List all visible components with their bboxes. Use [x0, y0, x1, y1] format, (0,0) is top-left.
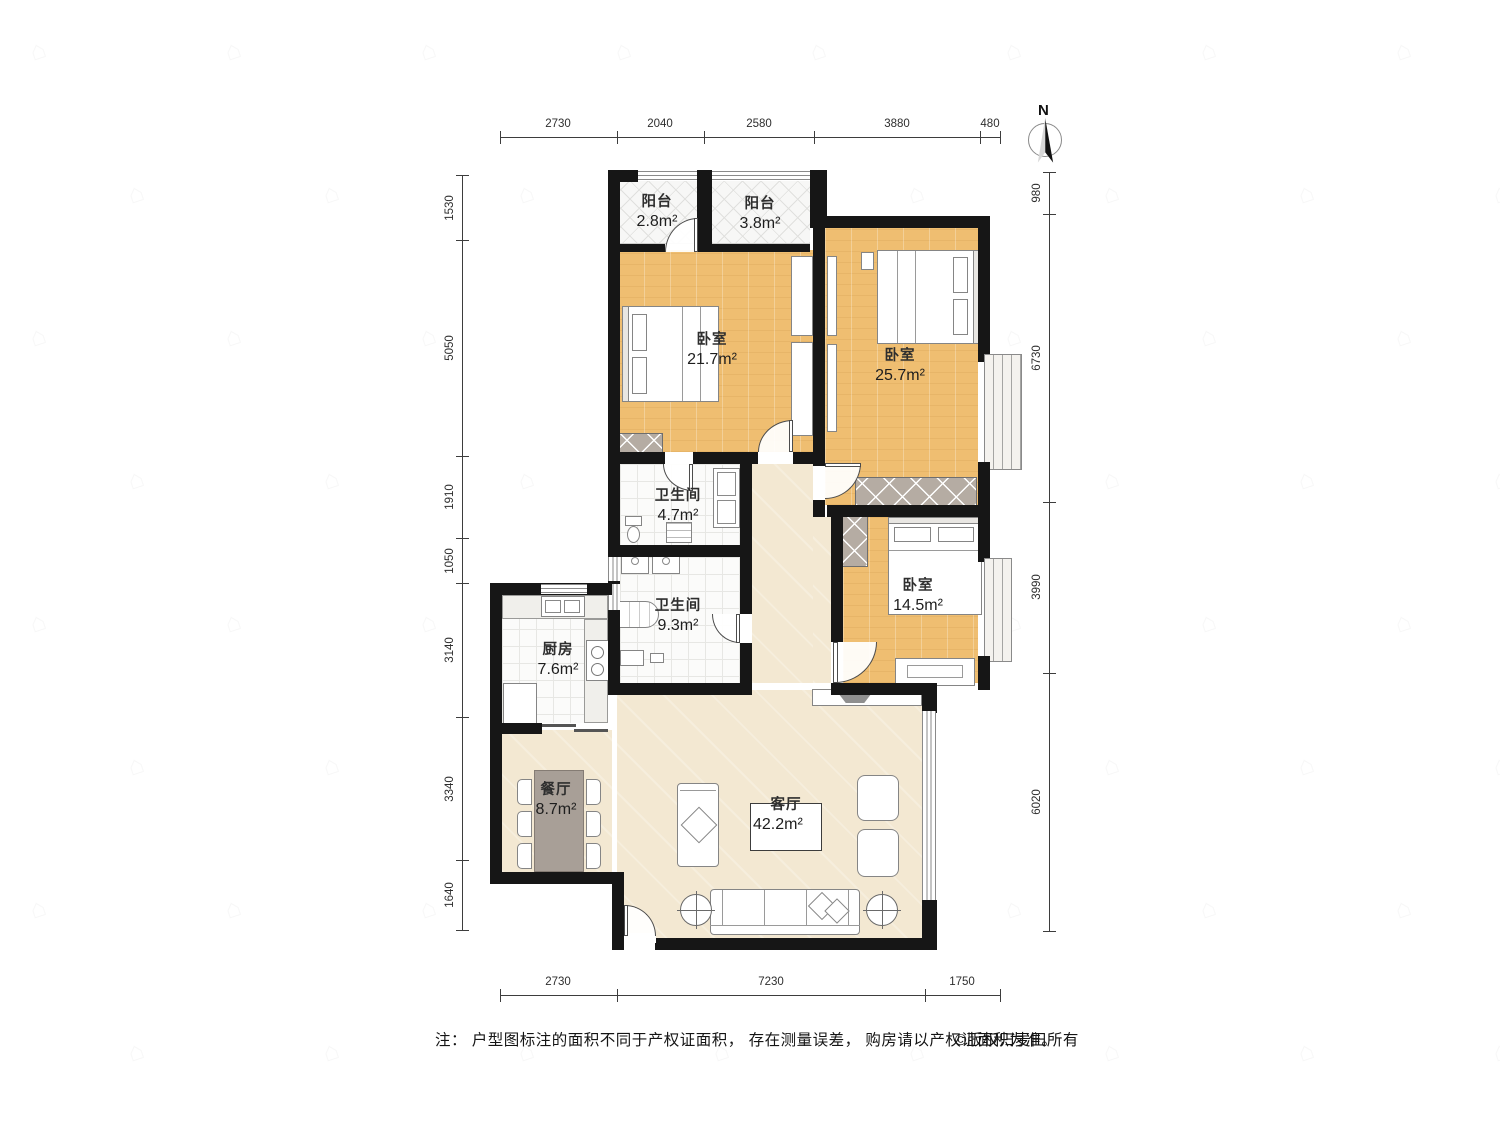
wall: [831, 517, 843, 642]
window-seat-inner: [907, 665, 963, 678]
tick: [1043, 931, 1056, 932]
watermark-mark: ⌂: [416, 891, 441, 925]
wardrobe-bedroom-c: [841, 515, 868, 567]
watermark-mark: ⌂: [221, 605, 246, 639]
tick: [925, 989, 926, 1002]
watermark-mark: ⌂: [1001, 33, 1026, 67]
bed-c-headboard: [888, 517, 982, 524]
room-name: 客厅: [748, 793, 824, 814]
wall: [978, 656, 990, 690]
room-name: 卧室: [668, 328, 756, 349]
watermark-mark: ⌂: [904, 176, 929, 210]
bed-a-headboard: [622, 306, 629, 402]
dim-bottom-2: 7230: [758, 976, 784, 988]
door-bath-b-leaf: [736, 614, 740, 643]
balcony1-rail-window: [638, 171, 697, 181]
fridge: [503, 683, 537, 725]
corridor-floor: [752, 464, 813, 683]
dim-bottom-3: 1750: [949, 976, 975, 988]
tick: [456, 538, 469, 539]
room-area: 4.7m²: [636, 507, 720, 525]
room-area: 7.6m²: [516, 661, 600, 679]
bed-b-pillow-1: [953, 257, 968, 293]
living-room-window: [922, 711, 936, 902]
tick: [500, 989, 501, 1002]
shelf-bedroom-b-1: [827, 256, 837, 336]
kitchen-sliding-door-2: [574, 729, 608, 732]
bed-c-line: [889, 550, 981, 551]
label-balcony2: 阳台 3.8m²: [716, 192, 804, 233]
basin-dot-2: [662, 557, 670, 565]
washer-bath-b: [620, 650, 644, 666]
bay-window-bedroom-c: [984, 558, 1012, 662]
bed-a-pillow-1: [632, 314, 647, 351]
watermark-mark: ⌂: [26, 891, 51, 925]
label-balcony1: 阳台 2.8m²: [616, 190, 698, 231]
watermark-mark: ⌂: [1391, 33, 1416, 67]
watermark-mark: ⌂: [1391, 319, 1416, 353]
wall: [612, 872, 624, 950]
tick: [980, 131, 981, 144]
wall: [922, 683, 937, 713]
tick: [456, 930, 469, 931]
watermark-mark: ⌂: [1489, 462, 1500, 496]
watermark-mark: ⌂: [124, 748, 149, 782]
tick: [814, 131, 815, 144]
watermark-mark: ⌂: [1391, 891, 1416, 925]
dim-top-4: 3880: [884, 118, 910, 130]
label-bath-a: 卫生间 4.7m²: [636, 484, 720, 525]
label-kitchen: 厨房 7.6m²: [516, 638, 600, 679]
watermark-mark: ⌂: [416, 33, 441, 67]
tick: [1043, 673, 1056, 674]
watermark-mark: ⌂: [611, 33, 636, 67]
watermark-mark: ⌂: [26, 605, 51, 639]
wall: [827, 505, 990, 517]
copyright-note: ©版权归麦田所有: [955, 1028, 1079, 1050]
room-area: 9.3m²: [636, 617, 720, 635]
label-living: 客厅 42.2m²: [748, 793, 824, 834]
tick: [617, 989, 618, 1002]
wall: [698, 244, 810, 252]
dim-line-left: [462, 175, 463, 930]
door-bedroom-c-leaf: [833, 642, 838, 683]
dim-right-1: 980: [1031, 183, 1043, 202]
dim-left-5: 3140: [444, 637, 456, 663]
dim-left-6: 3340: [444, 776, 456, 802]
kitchen-sink-basin-2: [564, 600, 580, 613]
watermark-mark: ⌂: [319, 462, 344, 496]
watermark-mark: ⌂: [221, 319, 246, 353]
watermark-mark: ⌂: [1489, 176, 1500, 210]
watermark-mark: ⌂: [514, 462, 539, 496]
watermark-mark: ⌂: [1099, 462, 1124, 496]
room-name: 卧室: [854, 344, 946, 365]
tick: [1043, 172, 1056, 173]
label-bedroom-b: 卧室 25.7m²: [854, 344, 946, 385]
room-area: 21.7m²: [668, 351, 756, 369]
dim-right-3: 3990: [1031, 574, 1043, 600]
tick: [617, 131, 618, 144]
dim-left-1: 1530: [444, 195, 456, 221]
room-name: 阳台: [716, 192, 804, 213]
tick: [1043, 502, 1056, 503]
wall: [608, 452, 665, 464]
label-bedroom-c: 卧室 14.5m²: [874, 574, 962, 615]
entry-door-leaf: [624, 905, 628, 936]
watermark-mark: ⌂: [124, 1034, 149, 1068]
compass-north-label: N: [1038, 102, 1049, 119]
watermark-mark: ⌂: [221, 891, 246, 925]
dim-top-3: 2580: [746, 118, 772, 130]
watermark-mark: ⌂: [1196, 319, 1221, 353]
wall: [813, 500, 825, 517]
room-name: 卧室: [874, 574, 962, 595]
watermark-mark: ⌂: [319, 1034, 344, 1068]
wall: [608, 683, 752, 695]
tick: [456, 717, 469, 718]
watermark-mark: ⌂: [1196, 605, 1221, 639]
wall: [697, 170, 712, 252]
watermark-mark: ⌂: [124, 176, 149, 210]
room-area: 14.5m²: [874, 597, 962, 615]
watermark-mark: ⌂: [416, 605, 441, 639]
basin-dot-1: [631, 557, 639, 565]
watermark-mark: ⌂: [1196, 33, 1221, 67]
balcony2-rail-window: [712, 171, 810, 181]
tick: [456, 175, 469, 176]
watermark-mark: ⌂: [1391, 605, 1416, 639]
watermark-mark: ⌂: [1489, 1034, 1500, 1068]
bed-b-pillow-2: [953, 299, 968, 335]
label-bedroom-a: 卧室 21.7m²: [668, 328, 756, 369]
watermark-mark: ⌂: [806, 33, 831, 67]
watermark-mark: ⌂: [221, 33, 246, 67]
bed-b-line-2: [915, 251, 916, 343]
room-name: 卫生间: [636, 594, 720, 615]
room-area: 25.7m²: [854, 367, 946, 385]
room-area: 42.2m²: [748, 816, 824, 834]
wall: [978, 216, 990, 362]
room-name: 卫生间: [636, 484, 720, 505]
wall: [815, 216, 990, 228]
tick: [456, 860, 469, 861]
tick: [1000, 989, 1001, 1002]
dim-right-4: 6020: [1031, 789, 1043, 815]
sofa-arm-line-1: [722, 890, 723, 926]
floorplan-canvas: ⌂⌂⌂⌂⌂⌂⌂⌂⌂⌂⌂⌂⌂⌂⌂⌂⌂⌂⌂⌂⌂⌂⌂⌂⌂⌂⌂⌂⌂⌂⌂⌂⌂⌂⌂⌂⌂⌂⌂⌂…: [0, 0, 1500, 1125]
room-name: 厨房: [516, 638, 600, 659]
pouf-1: [857, 775, 899, 821]
wall: [490, 723, 542, 734]
watermark-mark: ⌂: [319, 176, 344, 210]
wall: [922, 900, 937, 950]
dim-left-3: 1910: [444, 484, 456, 510]
side-table-2: [866, 894, 898, 926]
watermark-mark: ⌂: [1001, 319, 1026, 353]
bay-window-bedroom-b: [984, 354, 1022, 470]
label-bath-b: 卫生间 9.3m²: [636, 594, 720, 635]
door-bedroom-b-leaf: [825, 463, 861, 467]
watermark-mark: ⌂: [514, 176, 539, 210]
door-bedroom-a-leaf: [789, 420, 793, 452]
tick: [1043, 214, 1056, 215]
tick: [456, 240, 469, 241]
sofa-seat-line-1: [764, 890, 765, 926]
wall: [608, 545, 752, 557]
sofa-seat-line-2: [806, 890, 807, 926]
dim-left-7: 1640: [444, 882, 456, 908]
kitchen-window: [541, 584, 587, 594]
dim-bottom-1: 2730: [545, 976, 571, 988]
dim-top-1: 2730: [545, 118, 571, 130]
dining-chair-3: [517, 843, 532, 869]
dim-line-right: [1049, 172, 1050, 931]
dim-top-2: 2040: [647, 118, 673, 130]
shelf-bedroom-b-2: [827, 344, 837, 432]
watermark-mark: ⌂: [1196, 891, 1221, 925]
armchair-line: [680, 790, 716, 791]
watermark-mark: ⌂: [1294, 1034, 1319, 1068]
label-dining: 餐厅 8.7m²: [514, 778, 598, 819]
kitchen-sliding-door: [542, 724, 576, 727]
corridor-floor-2: [813, 517, 831, 683]
tick: [456, 583, 469, 584]
watermark-mark: ⌂: [26, 319, 51, 353]
dim-left-4: 1050: [444, 548, 456, 574]
watermark-mark: ⌂: [1294, 176, 1319, 210]
bed-a-pillow-2: [632, 357, 647, 394]
watermark-mark: ⌂: [1099, 748, 1124, 782]
dim-left-2: 5050: [444, 335, 456, 361]
tick: [704, 131, 705, 144]
dim-right-2: 6730: [1031, 345, 1043, 371]
toilet-bowl-bath-a: [627, 526, 640, 543]
watermark-mark: ⌂: [1489, 748, 1500, 782]
watermark-mark: ⌂: [26, 33, 51, 67]
watermark-mark: ⌂: [1099, 176, 1124, 210]
bed-c-pillow-1: [894, 527, 931, 542]
watermark-mark: ⌂: [1001, 891, 1026, 925]
watermark-mark: ⌂: [1099, 1034, 1124, 1068]
dining-chair-6: [586, 843, 601, 869]
nightstand-bedroom-b: [861, 252, 874, 270]
wall: [813, 228, 825, 452]
sofa-front-line: [710, 925, 860, 926]
pouf-2: [857, 829, 899, 877]
shelf-bath-a: [666, 522, 692, 543]
kitchen-sink-basin-1: [545, 600, 561, 613]
wall: [831, 683, 926, 695]
wall: [608, 244, 665, 252]
wall: [655, 938, 925, 950]
room-area: 3.8m²: [716, 215, 804, 233]
wall: [740, 452, 752, 614]
room-name: 餐厅: [514, 778, 598, 799]
watermark-mark: ⌂: [1294, 748, 1319, 782]
cabinet-bedroom-a-1: [791, 256, 813, 336]
room-area: 8.7m²: [514, 801, 598, 819]
fixture-bath-b: [650, 653, 664, 663]
watermark-mark: ⌂: [416, 319, 441, 353]
dim-top-5: 480: [980, 118, 999, 130]
watermark-mark: ⌂: [1294, 462, 1319, 496]
tick: [500, 131, 501, 144]
room-area: 2.8m²: [616, 213, 698, 231]
cabinet-bedroom-a-2: [791, 342, 813, 436]
watermark-mark: ⌂: [319, 748, 344, 782]
window-bath-b-west-1: [608, 553, 620, 581]
wall: [813, 452, 825, 466]
dim-line-top: [500, 137, 1000, 138]
tick: [1000, 131, 1001, 144]
bed-c-pillow-2: [938, 527, 974, 542]
bed-b-line: [897, 251, 898, 343]
sofa-arm-line-2: [848, 890, 849, 926]
tick: [456, 456, 469, 457]
room-name: 阳台: [616, 190, 698, 211]
wall: [490, 872, 624, 884]
watermark-mark: ⌂: [124, 462, 149, 496]
side-table-1: [680, 894, 712, 926]
wardrobe-bedroom-b: [855, 477, 977, 506]
